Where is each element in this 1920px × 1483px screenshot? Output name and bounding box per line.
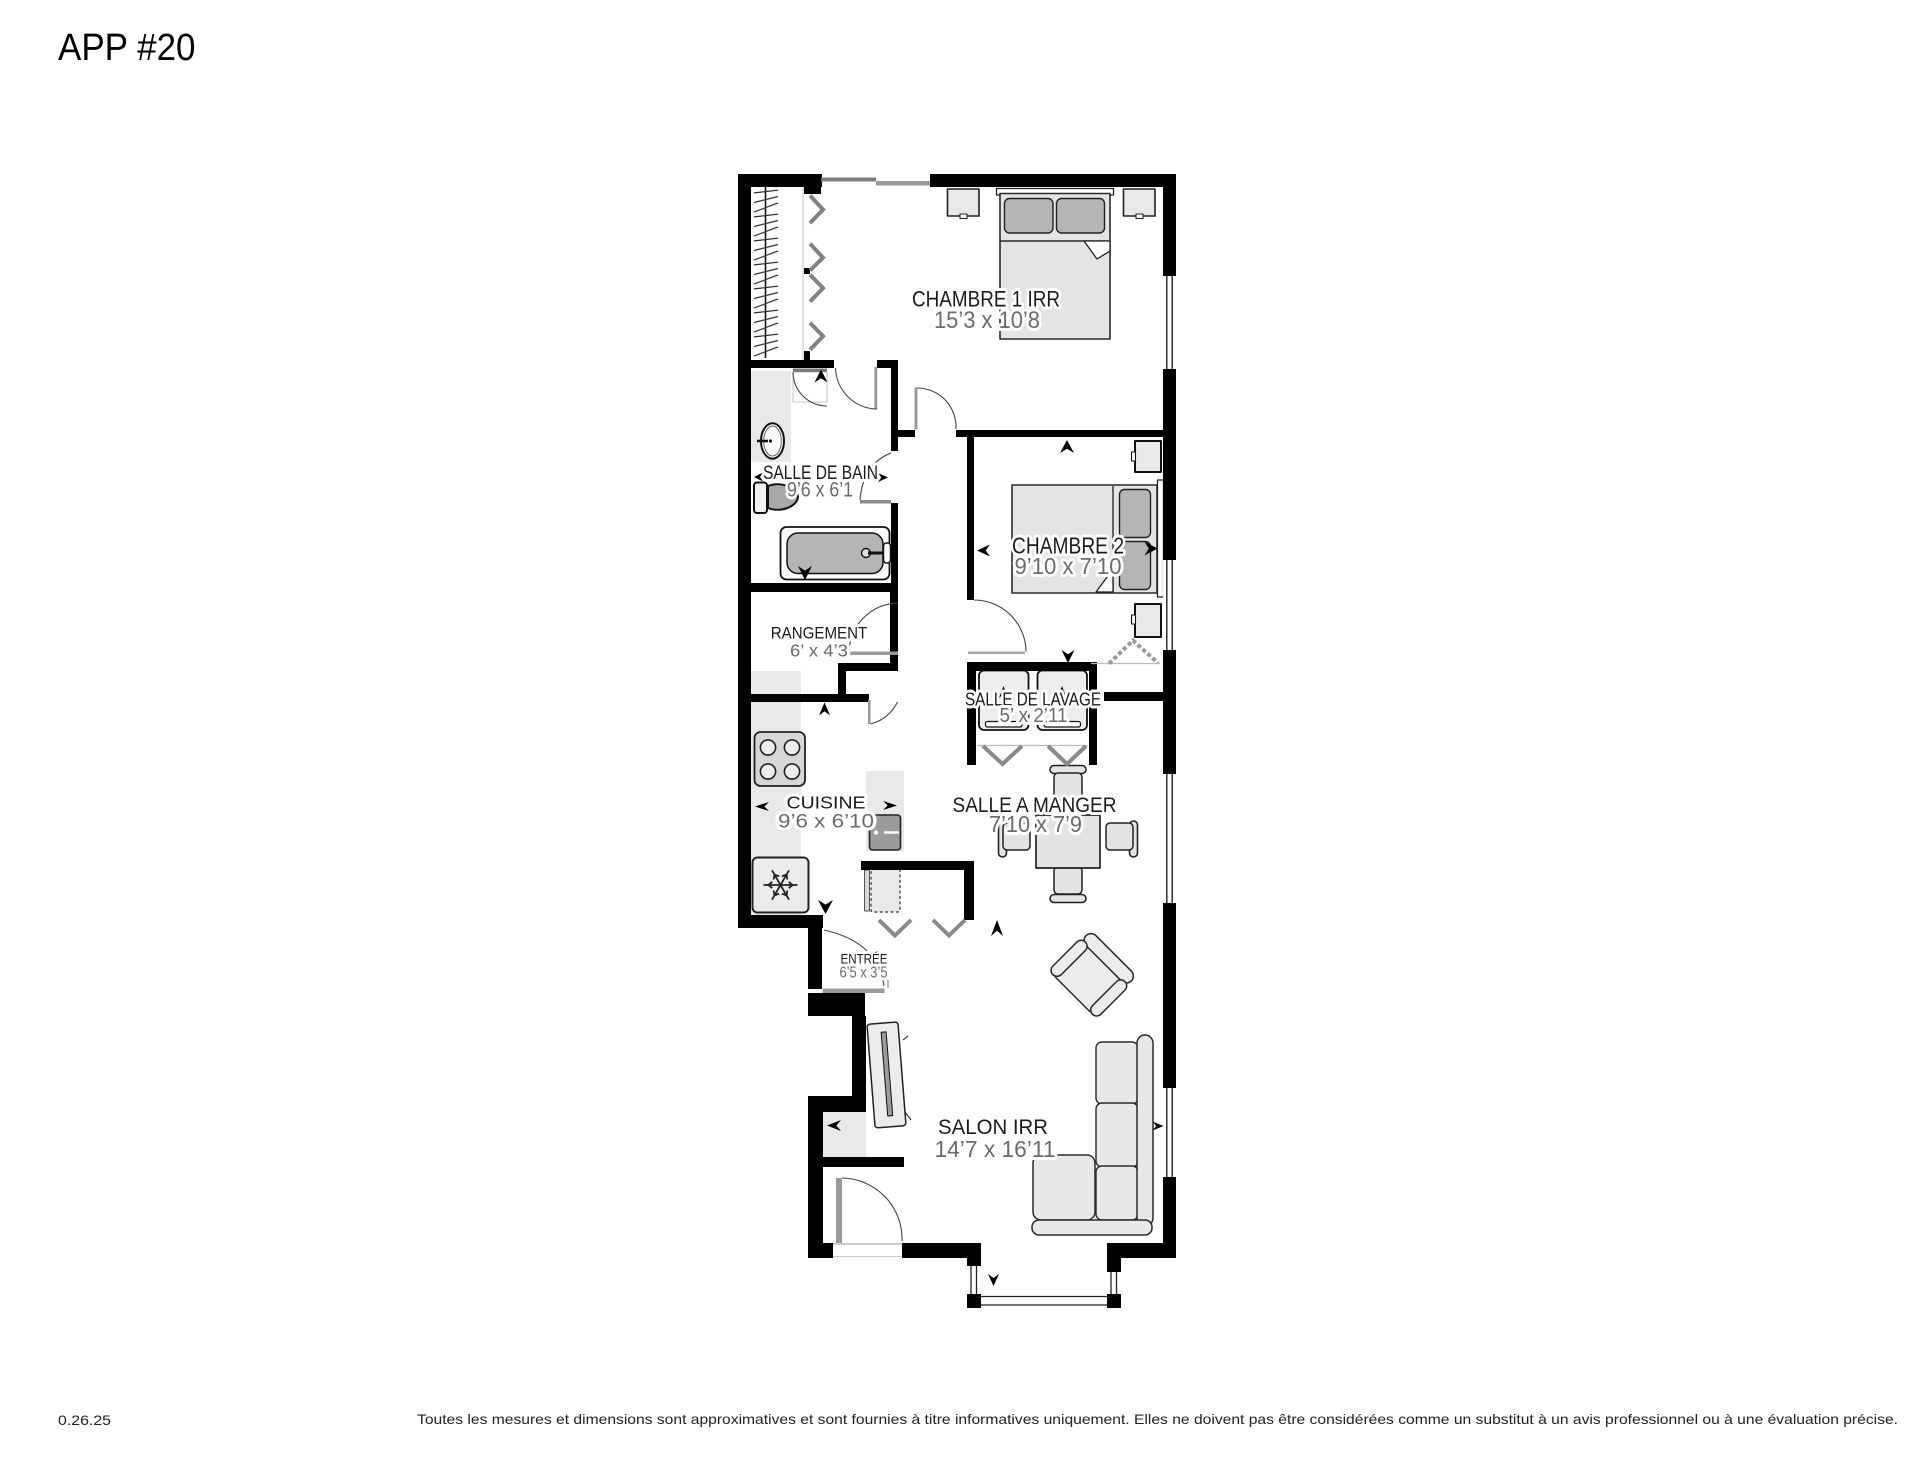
svg-text:9’10 x 7’10: 9’10 x 7’10 [1015,553,1122,579]
svg-text:9’6 x 6’10: 9’6 x 6’10 [778,812,874,833]
svg-text:15’3 x 10’8: 15’3 x 10’8 [934,307,1040,334]
svg-text:0.26.25: 0.26.25 [58,1412,111,1428]
svg-text:CUISINE: CUISINE [787,793,866,813]
svg-text:14’7 x 16’11: 14’7 x 16’11 [935,1136,1056,1162]
svg-text:Toutes les mesures et dimensio: Toutes les mesures et dimensions sont ap… [417,1411,1898,1427]
svg-text:7’10 x 7’9: 7’10 x 7’9 [989,811,1082,837]
svg-text:9’6 x 6’1: 9’6 x 6’1 [787,479,853,502]
svg-text:6’ x 4’3: 6’ x 4’3 [790,641,848,661]
svg-text:APP #20: APP #20 [58,27,196,69]
svg-text:6’5 x 3’5: 6’5 x 3’5 [840,965,888,982]
svg-text:5’ x 2’11: 5’ x 2’11 [1000,705,1068,727]
